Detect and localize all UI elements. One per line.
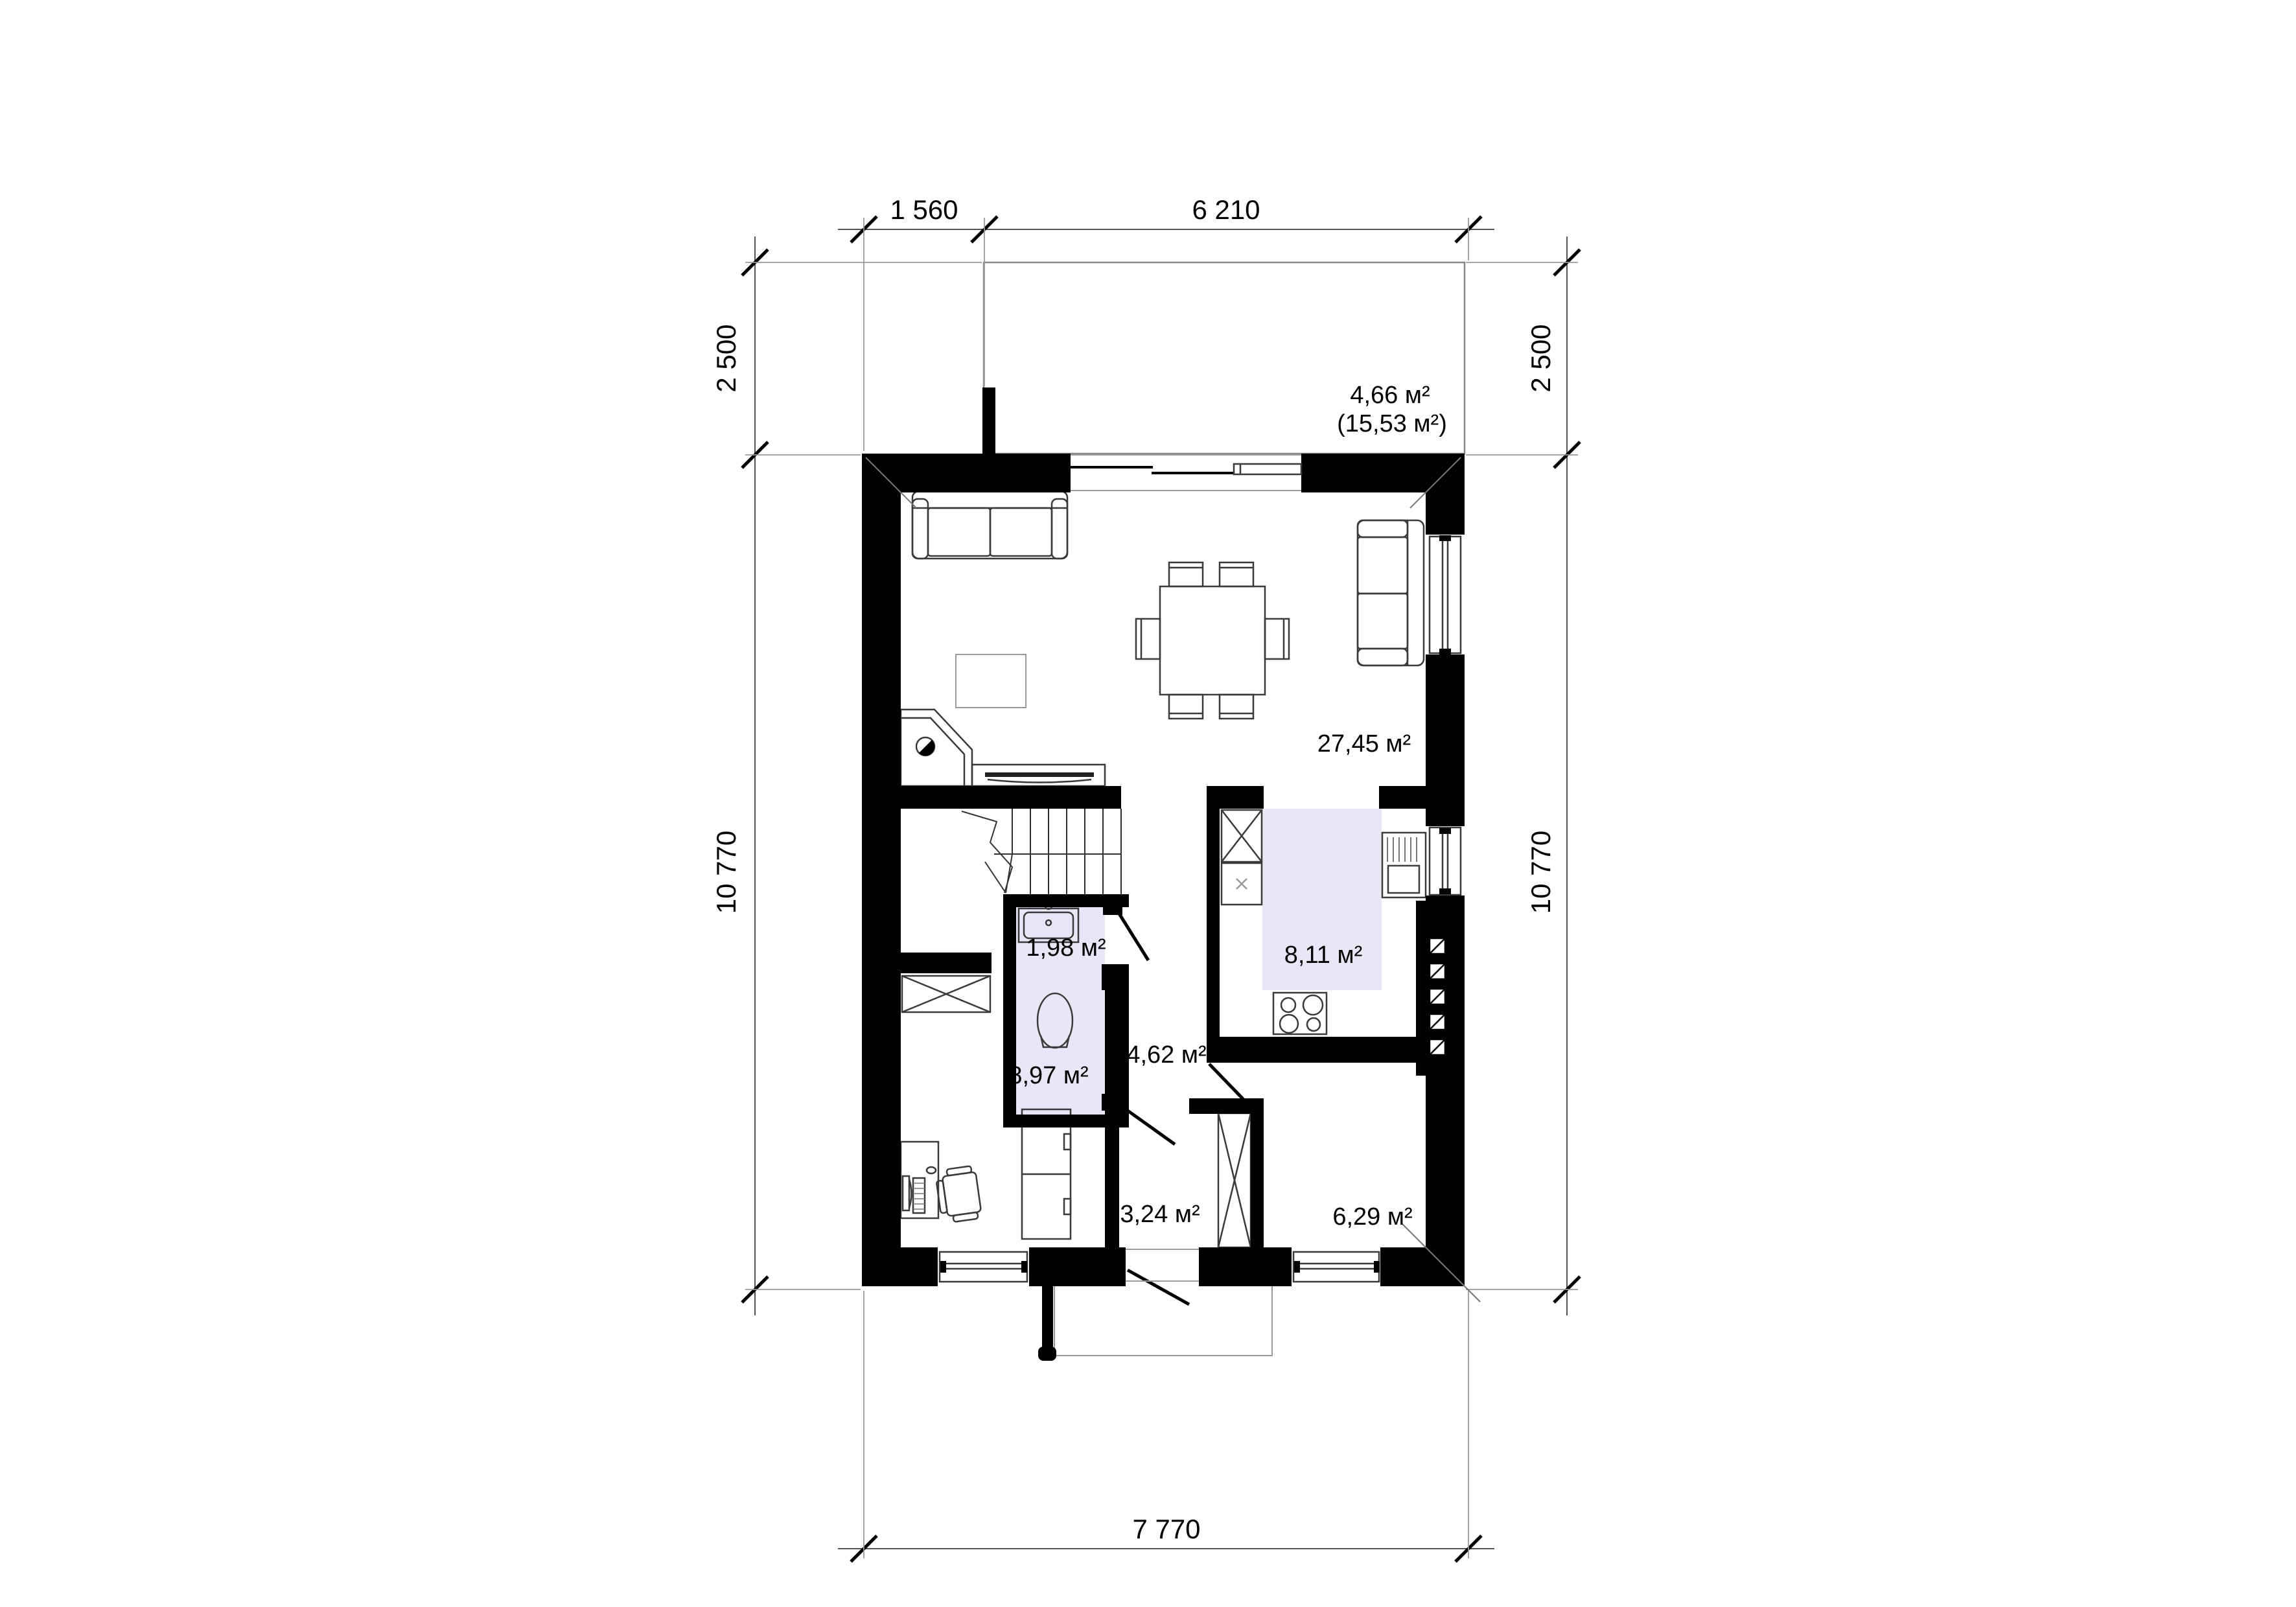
backroom-area-label: 6,29 м²	[1332, 1203, 1412, 1231]
terrace-total-area-label: (15,53 м²)	[1337, 410, 1447, 437]
monitor-icon	[903, 1176, 909, 1210]
wall-backroom-left	[1251, 1098, 1264, 1247]
wall-wc-left	[1003, 894, 1016, 1127]
wall-bottom-3	[1199, 1247, 1292, 1286]
kitchen-cabinet	[1222, 863, 1262, 905]
mouse-icon	[927, 1167, 936, 1173]
loveseat	[1358, 520, 1424, 665]
dim-left-10770: 10 770	[711, 831, 741, 914]
entrance-door-leaf	[1128, 1270, 1189, 1304]
vestibule-area-label: 3,24 м²	[1120, 1201, 1200, 1228]
wall-bottom-4	[1380, 1247, 1465, 1286]
porch	[1038, 1278, 1272, 1361]
tv-icon	[985, 772, 1094, 777]
wall-wc-right	[1105, 990, 1129, 1117]
wall-kitchen-top-right	[1379, 786, 1426, 809]
dim-top-6210: 6 210	[1192, 194, 1260, 225]
window-kitchen	[1430, 827, 1461, 895]
wall-right-1	[1426, 454, 1465, 535]
vent-shaft-icon	[1430, 1039, 1445, 1055]
window-living	[1430, 535, 1461, 654]
kitchen-area-label: 8,11 м²	[1284, 942, 1362, 969]
backroom-door-leaf	[1209, 1064, 1246, 1102]
wall-wc-pier	[1102, 964, 1129, 990]
window-office	[940, 1252, 1027, 1282]
cooktop	[1273, 993, 1327, 1034]
dim-left-2500: 2 500	[711, 324, 741, 392]
wall-bottom-2	[1029, 1247, 1126, 1286]
hall-area-label: 4,62 м²	[1126, 1041, 1206, 1069]
wall-kitchen-pier	[1207, 786, 1264, 809]
wall-office-top	[899, 953, 991, 973]
chimney	[982, 387, 995, 492]
office-wardrobe	[902, 976, 990, 1012]
dim-right-2500: 2 500	[1525, 324, 1556, 392]
fridge	[1222, 810, 1262, 862]
sofa	[912, 491, 1067, 559]
floor-plan-drawing: 1 560 6 210 2 500 10 770 2 500 10 770 7 …	[0, 0, 2296, 1607]
wc-area-label: 1,98 м²	[1026, 934, 1106, 962]
office-shelf	[1022, 1109, 1071, 1239]
kitchen-sink-counter	[1382, 833, 1426, 897]
dining-set	[1136, 562, 1289, 719]
coffee-table	[956, 654, 1026, 708]
vent-shaft-icon	[1430, 938, 1445, 954]
vent-shaft-icon	[1430, 964, 1445, 979]
porch-pillar	[1042, 1278, 1053, 1348]
dim-bottom-7770: 7 770	[1132, 1514, 1200, 1544]
wall-mid	[899, 786, 1121, 809]
desk	[901, 1142, 938, 1218]
wall-right-2	[1426, 654, 1465, 826]
dim-top-1560: 1 560	[890, 194, 958, 225]
entry-wardrobe	[1218, 1113, 1251, 1247]
wall-bottom-1	[862, 1247, 938, 1286]
office-chair	[935, 1166, 982, 1224]
dim-right-10770: 10 770	[1525, 831, 1556, 914]
vent-shaft-icon	[1430, 989, 1445, 1004]
living-area-label: 27,45 м²	[1317, 730, 1411, 757]
stove-icon	[916, 737, 934, 756]
wall-kitchen-bottom	[1207, 1037, 1426, 1063]
vent-shaft-icon	[1430, 1014, 1445, 1030]
office-area-label: 8,97 м²	[1008, 1062, 1088, 1089]
wall-kitchen-left	[1207, 809, 1220, 1043]
stair-break-line	[962, 811, 1012, 893]
terrace-glazing	[1068, 455, 1301, 491]
staircase	[962, 809, 1121, 901]
floor-plan-page: 1 560 6 210 2 500 10 770 2 500 10 770 7 …	[0, 0, 2296, 1607]
wall-left	[862, 454, 901, 1286]
tv-sideboard	[972, 765, 1105, 786]
sink-basin	[1388, 866, 1419, 893]
wc-door-leaf	[1116, 908, 1148, 960]
terrace-area-label: 4,66 м²	[1350, 382, 1430, 409]
corner-fireplace	[901, 710, 972, 786]
window-backroom	[1293, 1252, 1380, 1282]
